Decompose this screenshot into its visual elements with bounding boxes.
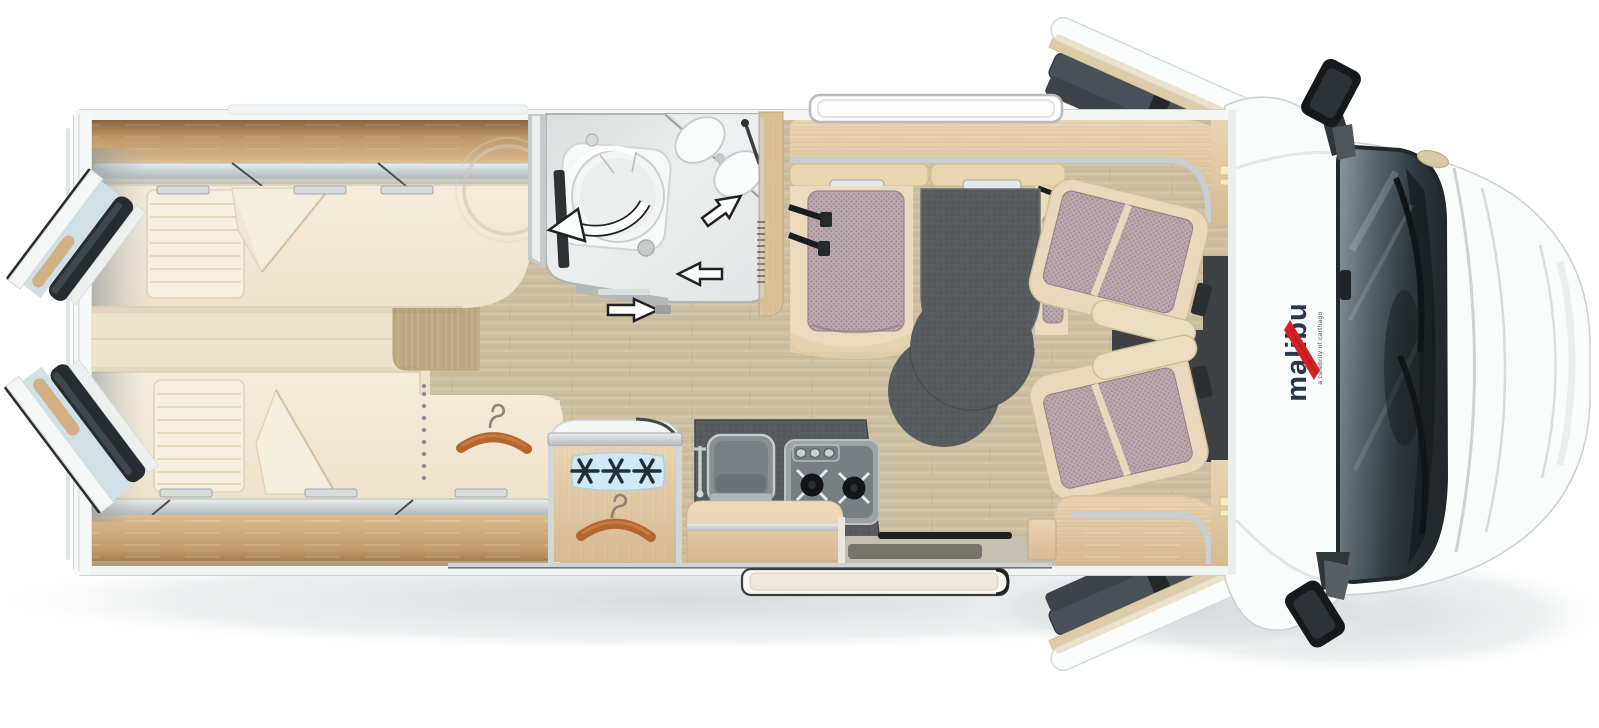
svg-text:a celebrity of carthago: a celebrity of carthago bbox=[1317, 311, 1324, 384]
